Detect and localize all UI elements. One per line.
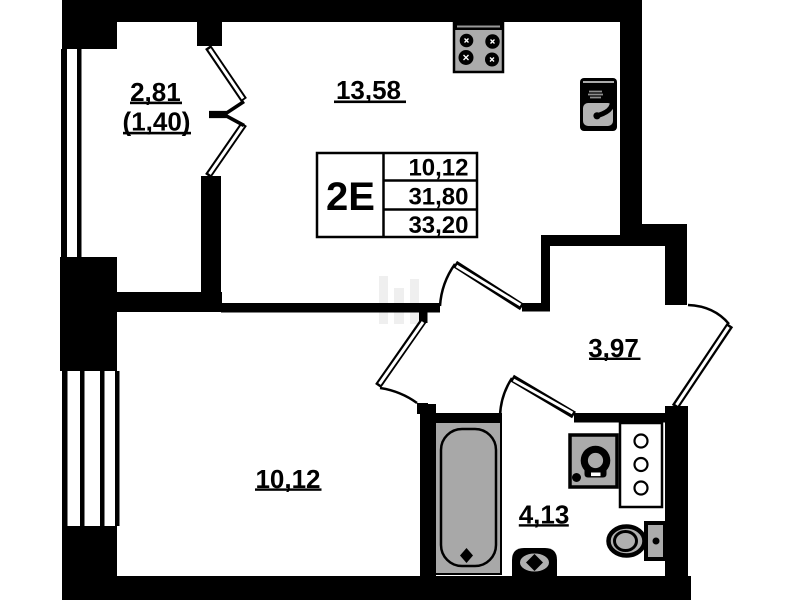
svg-text:2E: 2E bbox=[326, 175, 375, 219]
svg-text:10,12: 10,12 bbox=[408, 155, 468, 182]
svg-text:31,80: 31,80 bbox=[408, 184, 468, 211]
svg-text:33,20: 33,20 bbox=[408, 212, 468, 239]
